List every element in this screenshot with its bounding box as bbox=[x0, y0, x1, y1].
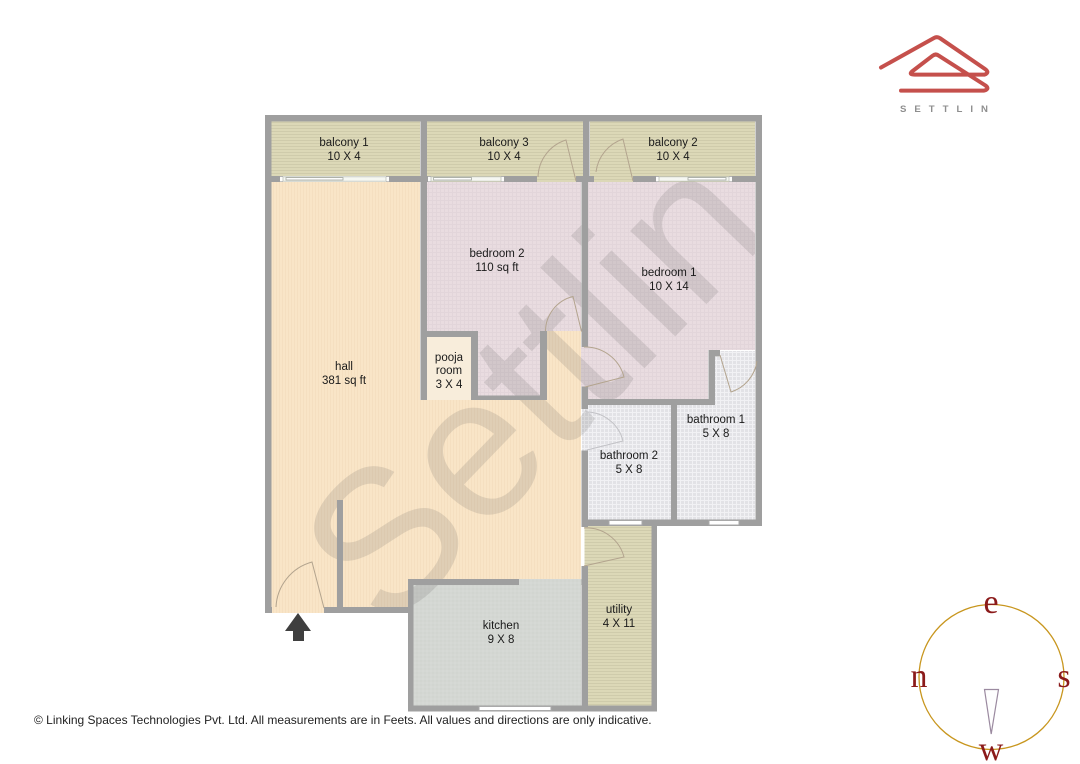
svg-text:w: w bbox=[979, 731, 1004, 764]
svg-text:9 X 8: 9 X 8 bbox=[488, 634, 515, 646]
svg-text:balcony 3: balcony 3 bbox=[479, 137, 528, 149]
svg-text:hall: hall bbox=[335, 361, 353, 373]
svg-text:bathroom 2: bathroom 2 bbox=[600, 450, 658, 462]
svg-text:110 sq ft: 110 sq ft bbox=[475, 262, 519, 274]
svg-text:bedroom 2: bedroom 2 bbox=[470, 248, 525, 260]
svg-text:bedroom 1: bedroom 1 bbox=[642, 267, 697, 279]
svg-text:5 X 8: 5 X 8 bbox=[703, 428, 730, 440]
svg-text:bathroom 1: bathroom 1 bbox=[687, 414, 745, 426]
svg-text:balcony 2: balcony 2 bbox=[648, 137, 697, 149]
svg-text:10 X 4: 10 X 4 bbox=[327, 151, 361, 163]
svg-text:10 X 4: 10 X 4 bbox=[656, 151, 690, 163]
svg-text:balcony 1: balcony 1 bbox=[319, 137, 368, 149]
svg-text:e: e bbox=[983, 584, 998, 621]
svg-text:utility: utility bbox=[606, 604, 632, 616]
svg-text:© Linking Spaces Technologies: © Linking Spaces Technologies Pvt. Ltd. … bbox=[34, 713, 652, 727]
svg-text:10 X 14: 10 X 14 bbox=[649, 281, 689, 293]
svg-text:room: room bbox=[436, 365, 462, 377]
svg-text:381 sq ft: 381 sq ft bbox=[322, 375, 367, 387]
svg-text:4 X 11: 4 X 11 bbox=[603, 618, 635, 630]
svg-text:10 X 4: 10 X 4 bbox=[487, 151, 521, 163]
svg-text:5 X 8: 5 X 8 bbox=[616, 464, 643, 476]
svg-text:3 X 4: 3 X 4 bbox=[436, 379, 463, 391]
svg-text:kitchen: kitchen bbox=[483, 620, 519, 632]
svg-text:pooja: pooja bbox=[435, 352, 464, 364]
svg-text:n: n bbox=[911, 658, 928, 695]
svg-text:s: s bbox=[1057, 658, 1070, 695]
svg-text:SETTLIN: SETTLIN bbox=[900, 104, 996, 115]
